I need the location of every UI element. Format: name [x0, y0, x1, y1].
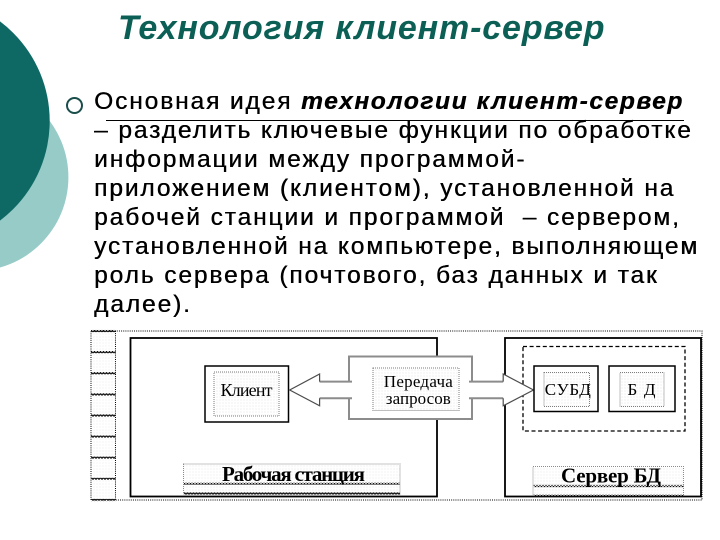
svg-text:запросов: запросов: [386, 389, 451, 408]
svg-text:СУБД: СУБД: [545, 380, 591, 399]
svg-text:Передача: Передача: [384, 372, 453, 391]
svg-text:Сервер БД: Сервер БД: [561, 464, 662, 488]
svg-text:Клиент: Клиент: [221, 380, 273, 400]
svg-text:Рабочая станция: Рабочая станция: [222, 462, 365, 486]
